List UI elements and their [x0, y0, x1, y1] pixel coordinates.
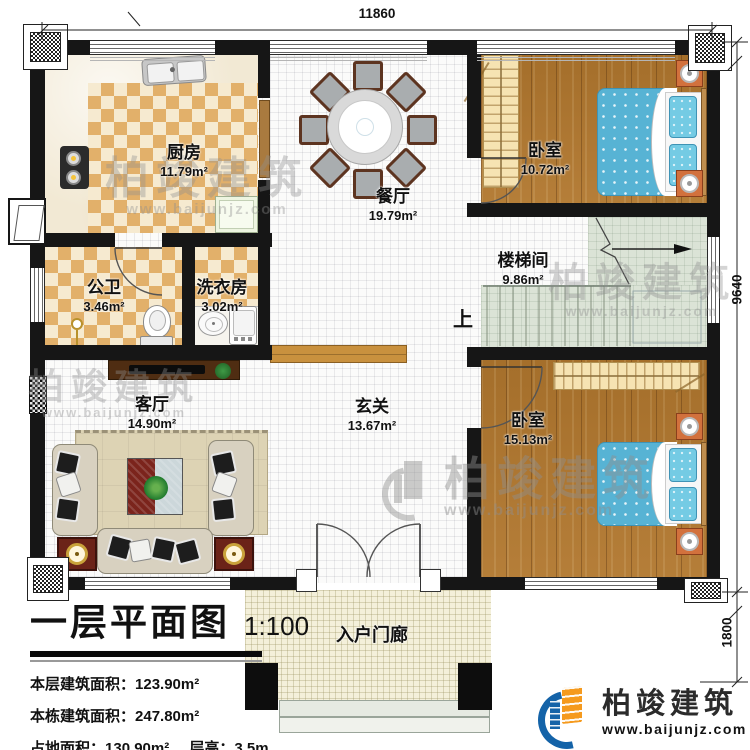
company-logo: 柏竣建筑 www.baijunjz.com: [538, 684, 747, 742]
dim-porch-depth: 1800: [720, 610, 735, 656]
title-underline: [30, 651, 262, 657]
title-underline-thin: [30, 660, 262, 662]
label-foyer: 玄关13.67m²: [348, 396, 396, 434]
stat-floor-area: 本层建筑面积：123.90m²: [30, 673, 309, 694]
label-kitchen: 厨房11.79m²: [160, 142, 208, 180]
stair-direction-arrowhead: [674, 244, 692, 254]
label-porch: 入户门廊: [336, 624, 408, 647]
watermark: 柏竣建筑 www.baijunjz.com: [548, 262, 736, 319]
label-stairwell: 楼梯间9.86m²: [498, 250, 549, 288]
logo-icon: [538, 684, 594, 742]
label-laundry: 洗衣房3.02m²: [197, 277, 248, 315]
label-living: 客厅14.90m²: [128, 394, 176, 432]
logo-company: 柏竣建筑: [602, 689, 747, 719]
floor-plan: 厨房11.79m² 餐厅19.79m² 卧室10.72m² 楼梯间9.86m² …: [0, 0, 750, 750]
watermark-icon: [382, 457, 434, 519]
logo-website: www.baijunjz.com: [602, 721, 747, 737]
label-dining: 餐厅19.79m²: [369, 186, 417, 224]
label-bedroom-bottom: 卧室15.13m²: [504, 410, 552, 448]
stat-footprint-and-height: 占地面积：130.90m² 层高：3.5m: [30, 737, 309, 750]
plan-title: 一层平面图: [30, 592, 230, 646]
plan-info-block: 一层平面图 1:100 本层建筑面积：123.90m² 本栋建筑面积：247.8…: [30, 592, 309, 750]
dim-right-height: 9640: [730, 267, 745, 313]
label-bedroom-top: 卧室10.72m²: [521, 140, 569, 178]
label-bathroom: 公卫3.46m²: [83, 277, 124, 315]
stat-building-area: 本栋建筑面积：247.80m²: [30, 705, 309, 726]
plan-scale: 1:100: [244, 611, 309, 642]
dim-top-width: 11860: [327, 6, 427, 21]
watermark: 柏竣建筑 www.baijunjz.com: [382, 455, 656, 520]
label-stair-up: 上: [453, 308, 473, 334]
